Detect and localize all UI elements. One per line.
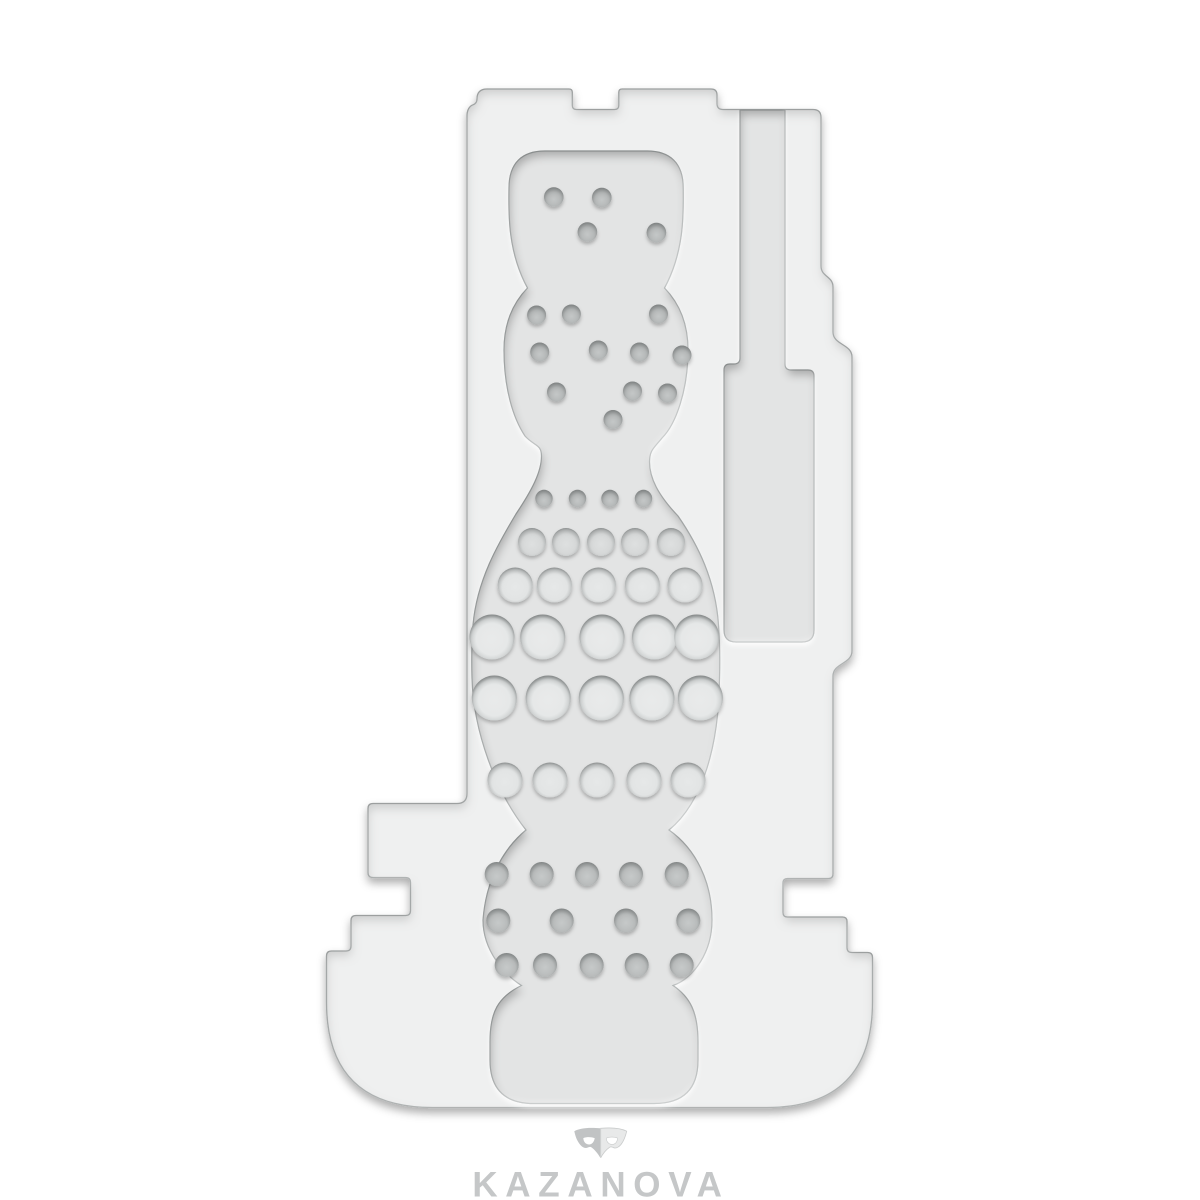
svg-text:KAZANOVA: KAZANOVA	[472, 1166, 729, 1200]
